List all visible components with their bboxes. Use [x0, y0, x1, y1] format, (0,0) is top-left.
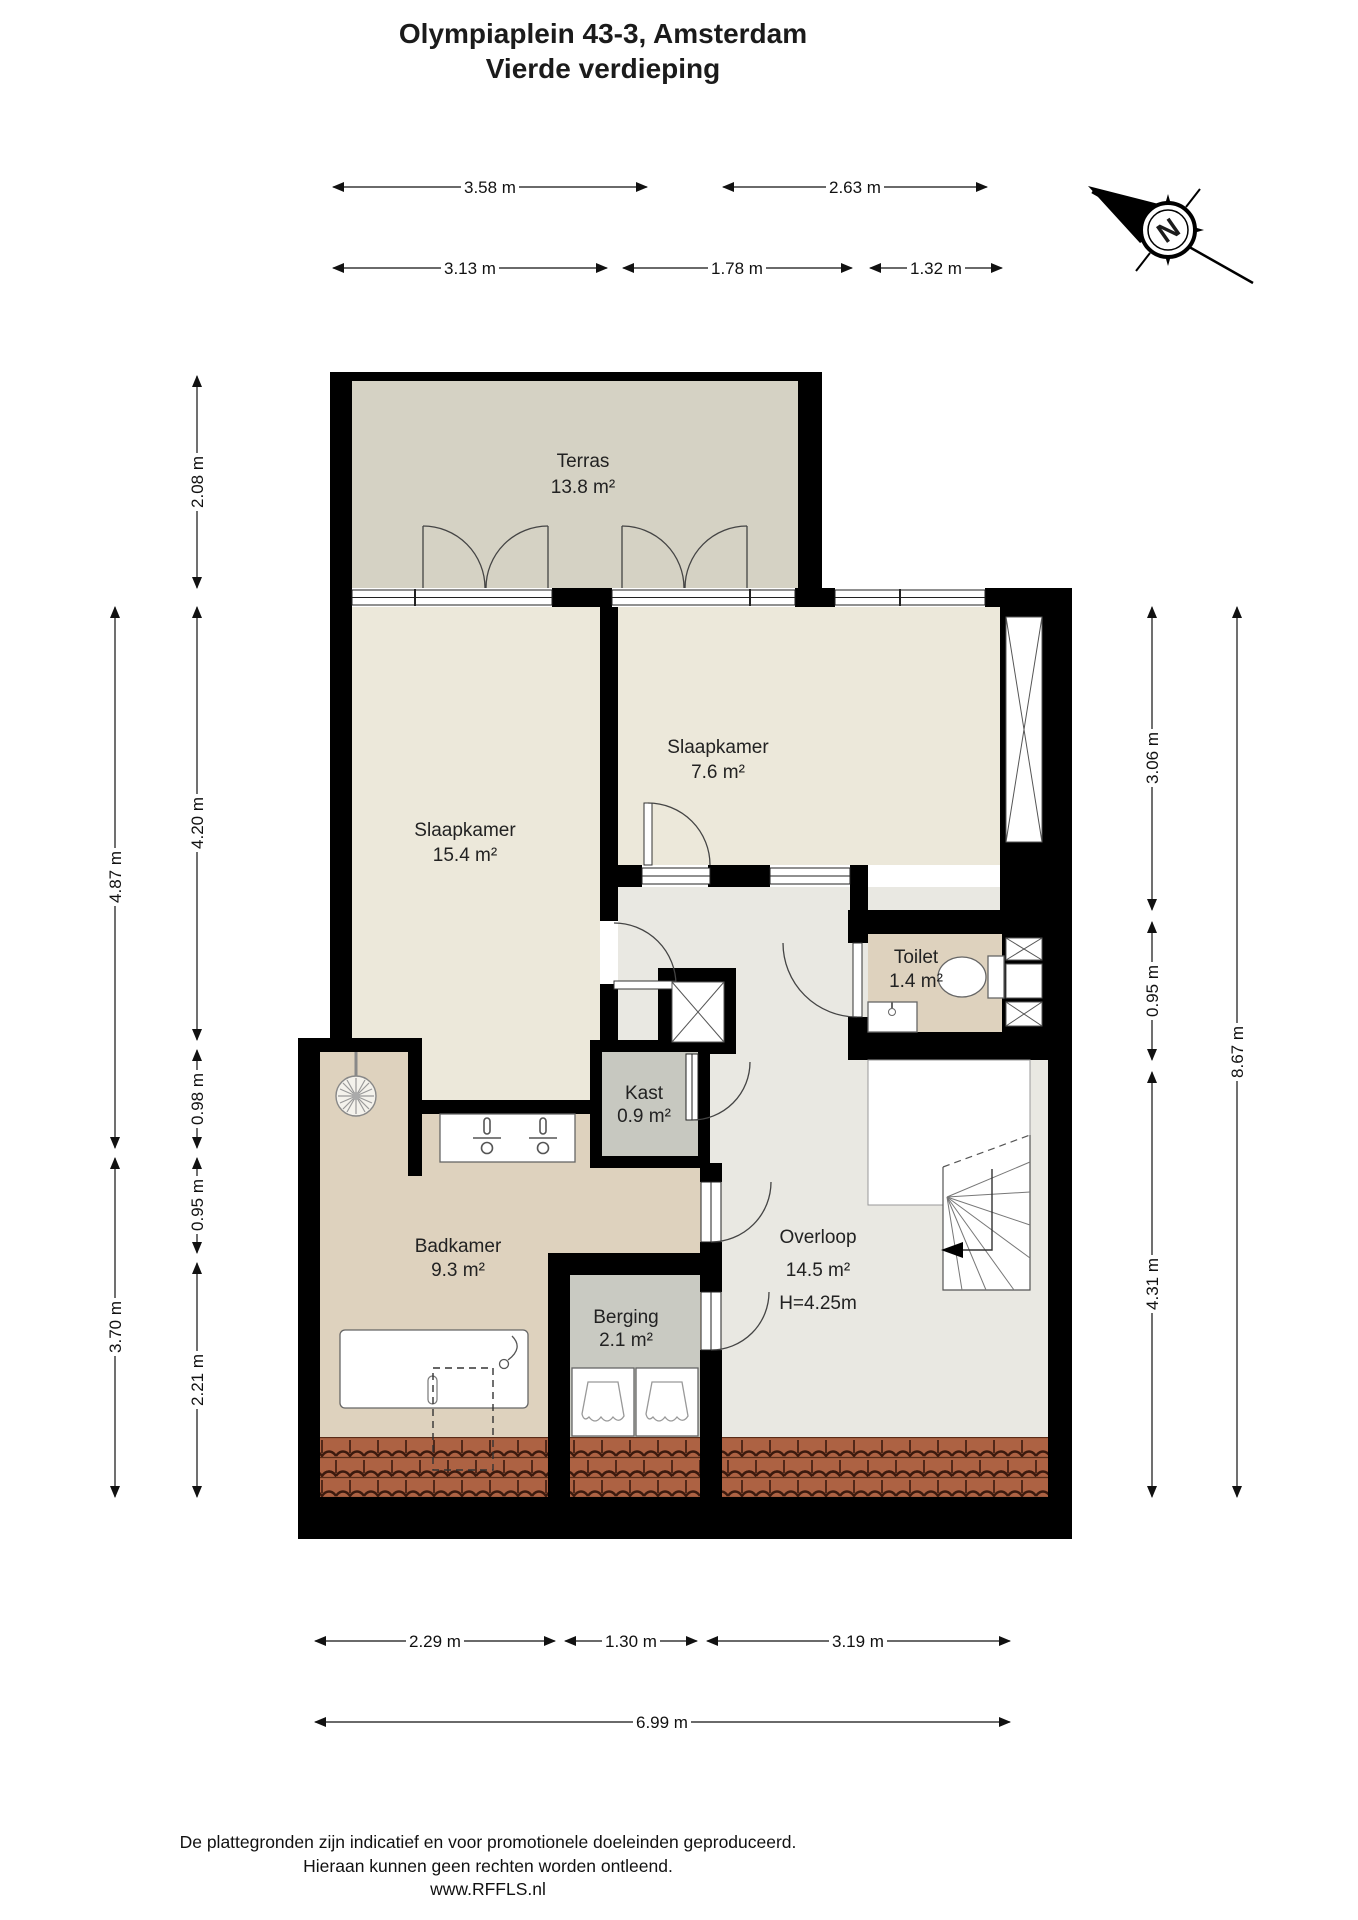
footer-website: www.RFFLS.nl — [429, 1879, 546, 1899]
footer-line-1: De plattegronden zijn indicatief en voor… — [180, 1832, 797, 1852]
dim-top: 2.63 m — [829, 178, 881, 197]
dim-right: 0.95 m — [1143, 965, 1162, 1017]
dim-right: 8.67 m — [1228, 1026, 1247, 1078]
label-slaapkamer-klein-area: 7.6 m² — [691, 762, 745, 783]
windows — [352, 589, 985, 606]
label-terras-area: 13.8 m² — [551, 477, 615, 498]
floorplan-canvas: Olympiaplein 43-3, Amsterdam Vierde verd… — [0, 0, 1358, 1920]
dim-left: 4.87 m — [106, 851, 125, 903]
dim-left: 4.20 m — [188, 797, 207, 849]
label-badkamer: Badkamer — [415, 1236, 502, 1257]
dim-bottom: 1.30 m — [605, 1632, 657, 1651]
dim-right: 3.06 m — [1143, 732, 1162, 784]
toilet-icon — [938, 957, 986, 997]
footer-disclaimer: De plattegronden zijn indicatief en voor… — [180, 1832, 797, 1899]
dim-top: 1.78 m — [711, 259, 763, 278]
label-kast-area: 0.9 m² — [617, 1106, 671, 1127]
label-slaapkamer-groot: Slaapkamer — [414, 820, 516, 841]
dim-top: 3.58 m — [464, 178, 516, 197]
label-slaapkamer-klein: Slaapkamer — [667, 737, 769, 758]
dim-bottom: 3.19 m — [832, 1632, 884, 1651]
footer-line-2: Hieraan kunnen geen rechten worden ontle… — [303, 1856, 673, 1876]
compass-icon: N — [1088, 186, 1253, 283]
dim-right: 4.31 m — [1143, 1258, 1162, 1310]
label-terras: Terras — [557, 451, 610, 472]
dim-top: 3.13 m — [444, 259, 496, 278]
label-badkamer-area: 9.3 m² — [431, 1260, 485, 1281]
door-leaf — [644, 803, 652, 865]
page-subtitle: Vierde verdieping — [486, 53, 720, 84]
label-toilet-area: 1.4 m² — [889, 971, 943, 992]
door-leaf — [614, 981, 676, 989]
label-kast: Kast — [625, 1083, 664, 1104]
washer-icon — [572, 1368, 634, 1436]
dim-bottom: 2.29 m — [409, 1632, 461, 1651]
label-toilet: Toilet — [894, 947, 939, 968]
dryer-icon — [636, 1368, 698, 1436]
slaapkamer-alkoof — [422, 1038, 590, 1104]
label-berging-area: 2.1 m² — [599, 1330, 653, 1351]
dim-left: 2.08 m — [188, 456, 207, 508]
bathtub-icon — [340, 1330, 528, 1408]
room-slaapkamer-klein — [618, 607, 1000, 865]
label-overloop-area: 14.5 m² — [786, 1260, 850, 1281]
dim-bottom: 6.99 m — [636, 1713, 688, 1732]
dim-left: 3.70 m — [106, 1301, 125, 1353]
niche-shelf — [1006, 964, 1042, 998]
dim-top: 1.32 m — [910, 259, 962, 278]
label-slaapkamer-groot-area: 15.4 m² — [433, 845, 497, 866]
floorplan-page: Olympiaplein 43-3, Amsterdam Vierde verd… — [0, 0, 1358, 1920]
label-overloop-height: H=4.25m — [779, 1293, 857, 1314]
dim-left: 0.95 m — [188, 1179, 207, 1231]
dim-left: 2.21 m — [188, 1354, 207, 1406]
roof-tiles — [320, 1437, 1048, 1497]
page-title: Olympiaplein 43-3, Amsterdam — [399, 18, 807, 49]
toilet-cistern-icon — [988, 956, 1004, 998]
label-berging: Berging — [593, 1307, 659, 1328]
door-leaf — [853, 943, 862, 1017]
label-overloop: Overloop — [779, 1227, 856, 1248]
dim-left: 0.98 m — [188, 1073, 207, 1125]
room-kast — [602, 1052, 698, 1156]
